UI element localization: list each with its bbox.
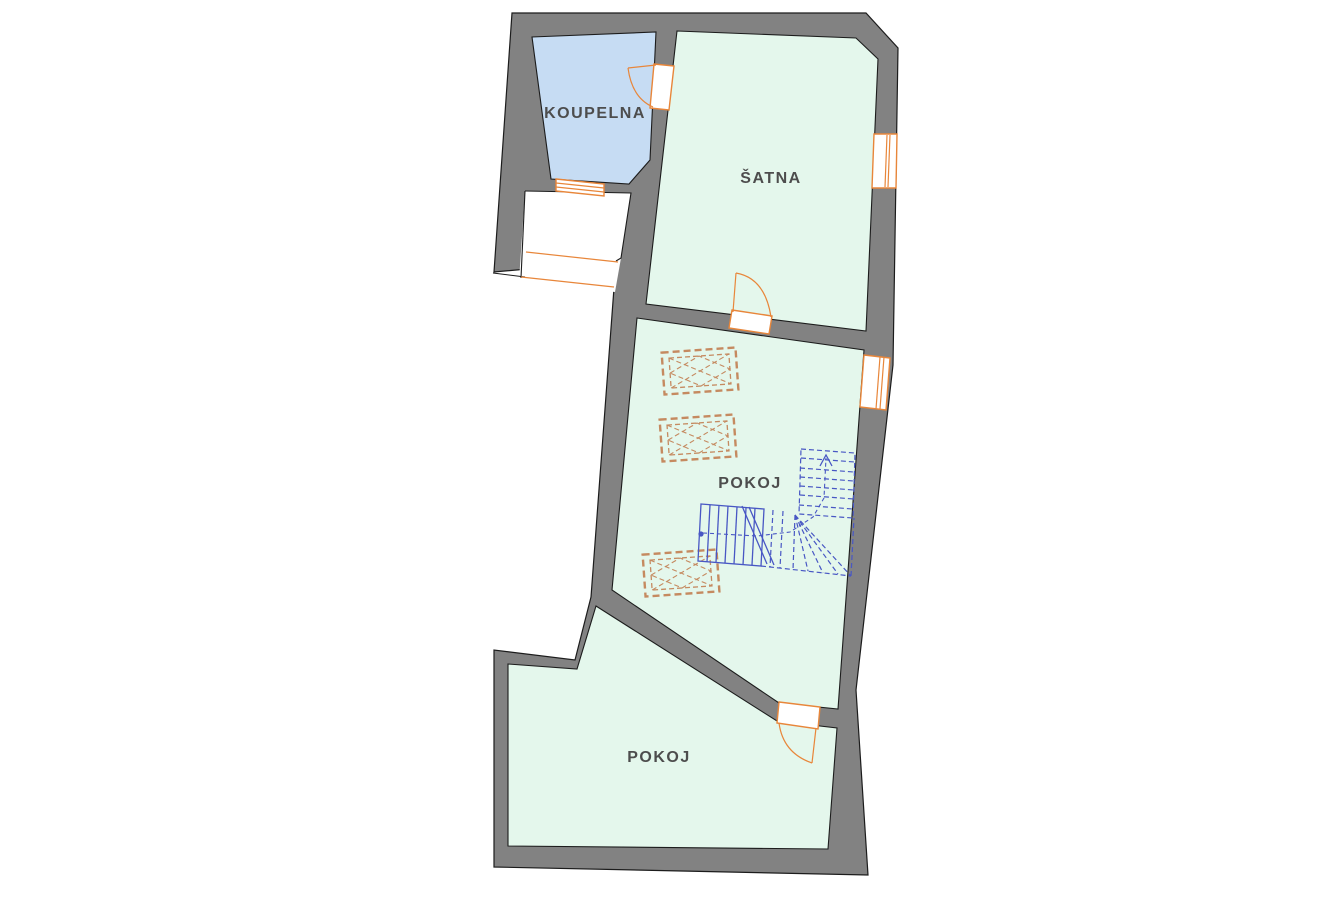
- room-label-koupelna: KOUPELNA: [544, 105, 646, 122]
- window-pokoj-middle: [860, 355, 890, 410]
- room-label-pokoj-middle: POKOJ: [718, 475, 782, 492]
- floor-plan-drawing: KOUPELNA ŠATNA POKOJ POKOJ: [0, 0, 1324, 902]
- window-satna: [872, 134, 897, 188]
- room-label-pokoj-bottom: POKOJ: [627, 749, 691, 766]
- room-vestibule: [519, 191, 631, 292]
- room-label-satna: ŠATNA: [740, 168, 801, 187]
- floor-plan-canvas: KOUPELNA ŠATNA POKOJ POKOJ: [0, 0, 1324, 902]
